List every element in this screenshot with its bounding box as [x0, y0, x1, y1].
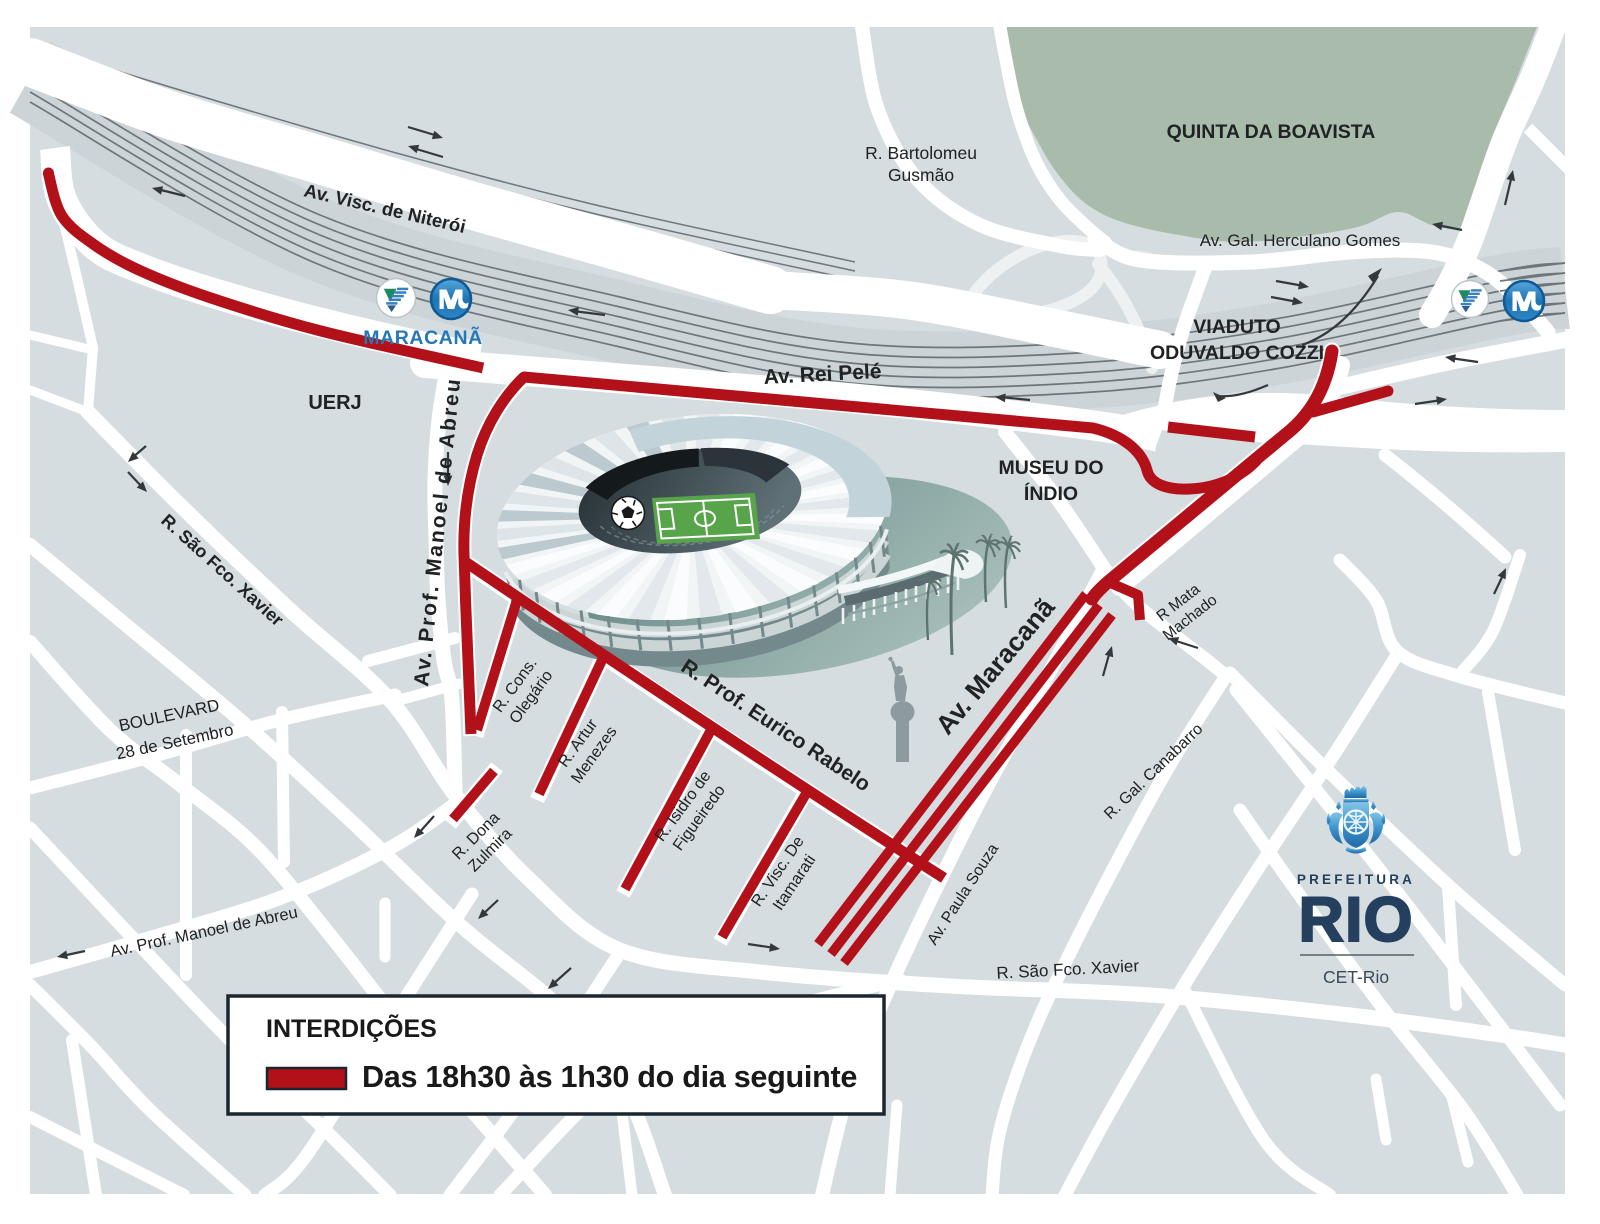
- svg-text:MARACANÃ: MARACANÃ: [363, 326, 483, 349]
- svg-text:Av. Gal. Herculano Gomes: Av. Gal. Herculano Gomes: [1200, 231, 1401, 250]
- svg-text:R. Bartolomeu: R. Bartolomeu: [865, 143, 977, 163]
- svg-text:Gusmão: Gusmão: [888, 165, 954, 185]
- svg-text:CET-Rio: CET-Rio: [1323, 967, 1389, 987]
- svg-text:QUINTA DA BOAVISTA: QUINTA DA BOAVISTA: [1167, 121, 1376, 143]
- svg-text:UERJ: UERJ: [308, 392, 361, 414]
- svg-text:Das 18h30 às 1h30 do dia segui: Das 18h30 às 1h30 do dia seguinte: [362, 1060, 857, 1094]
- svg-text:INTERDIÇÕES: INTERDIÇÕES: [266, 1013, 437, 1043]
- svg-text:VIADUTO: VIADUTO: [1193, 316, 1280, 338]
- svg-text:MUSEU DO: MUSEU DO: [998, 457, 1103, 479]
- svg-text:ÍNDIO: ÍNDIO: [1024, 482, 1078, 505]
- svg-text:ODUVALDO COZZI: ODUVALDO COZZI: [1150, 342, 1324, 364]
- svg-text:RIO: RIO: [1298, 885, 1413, 955]
